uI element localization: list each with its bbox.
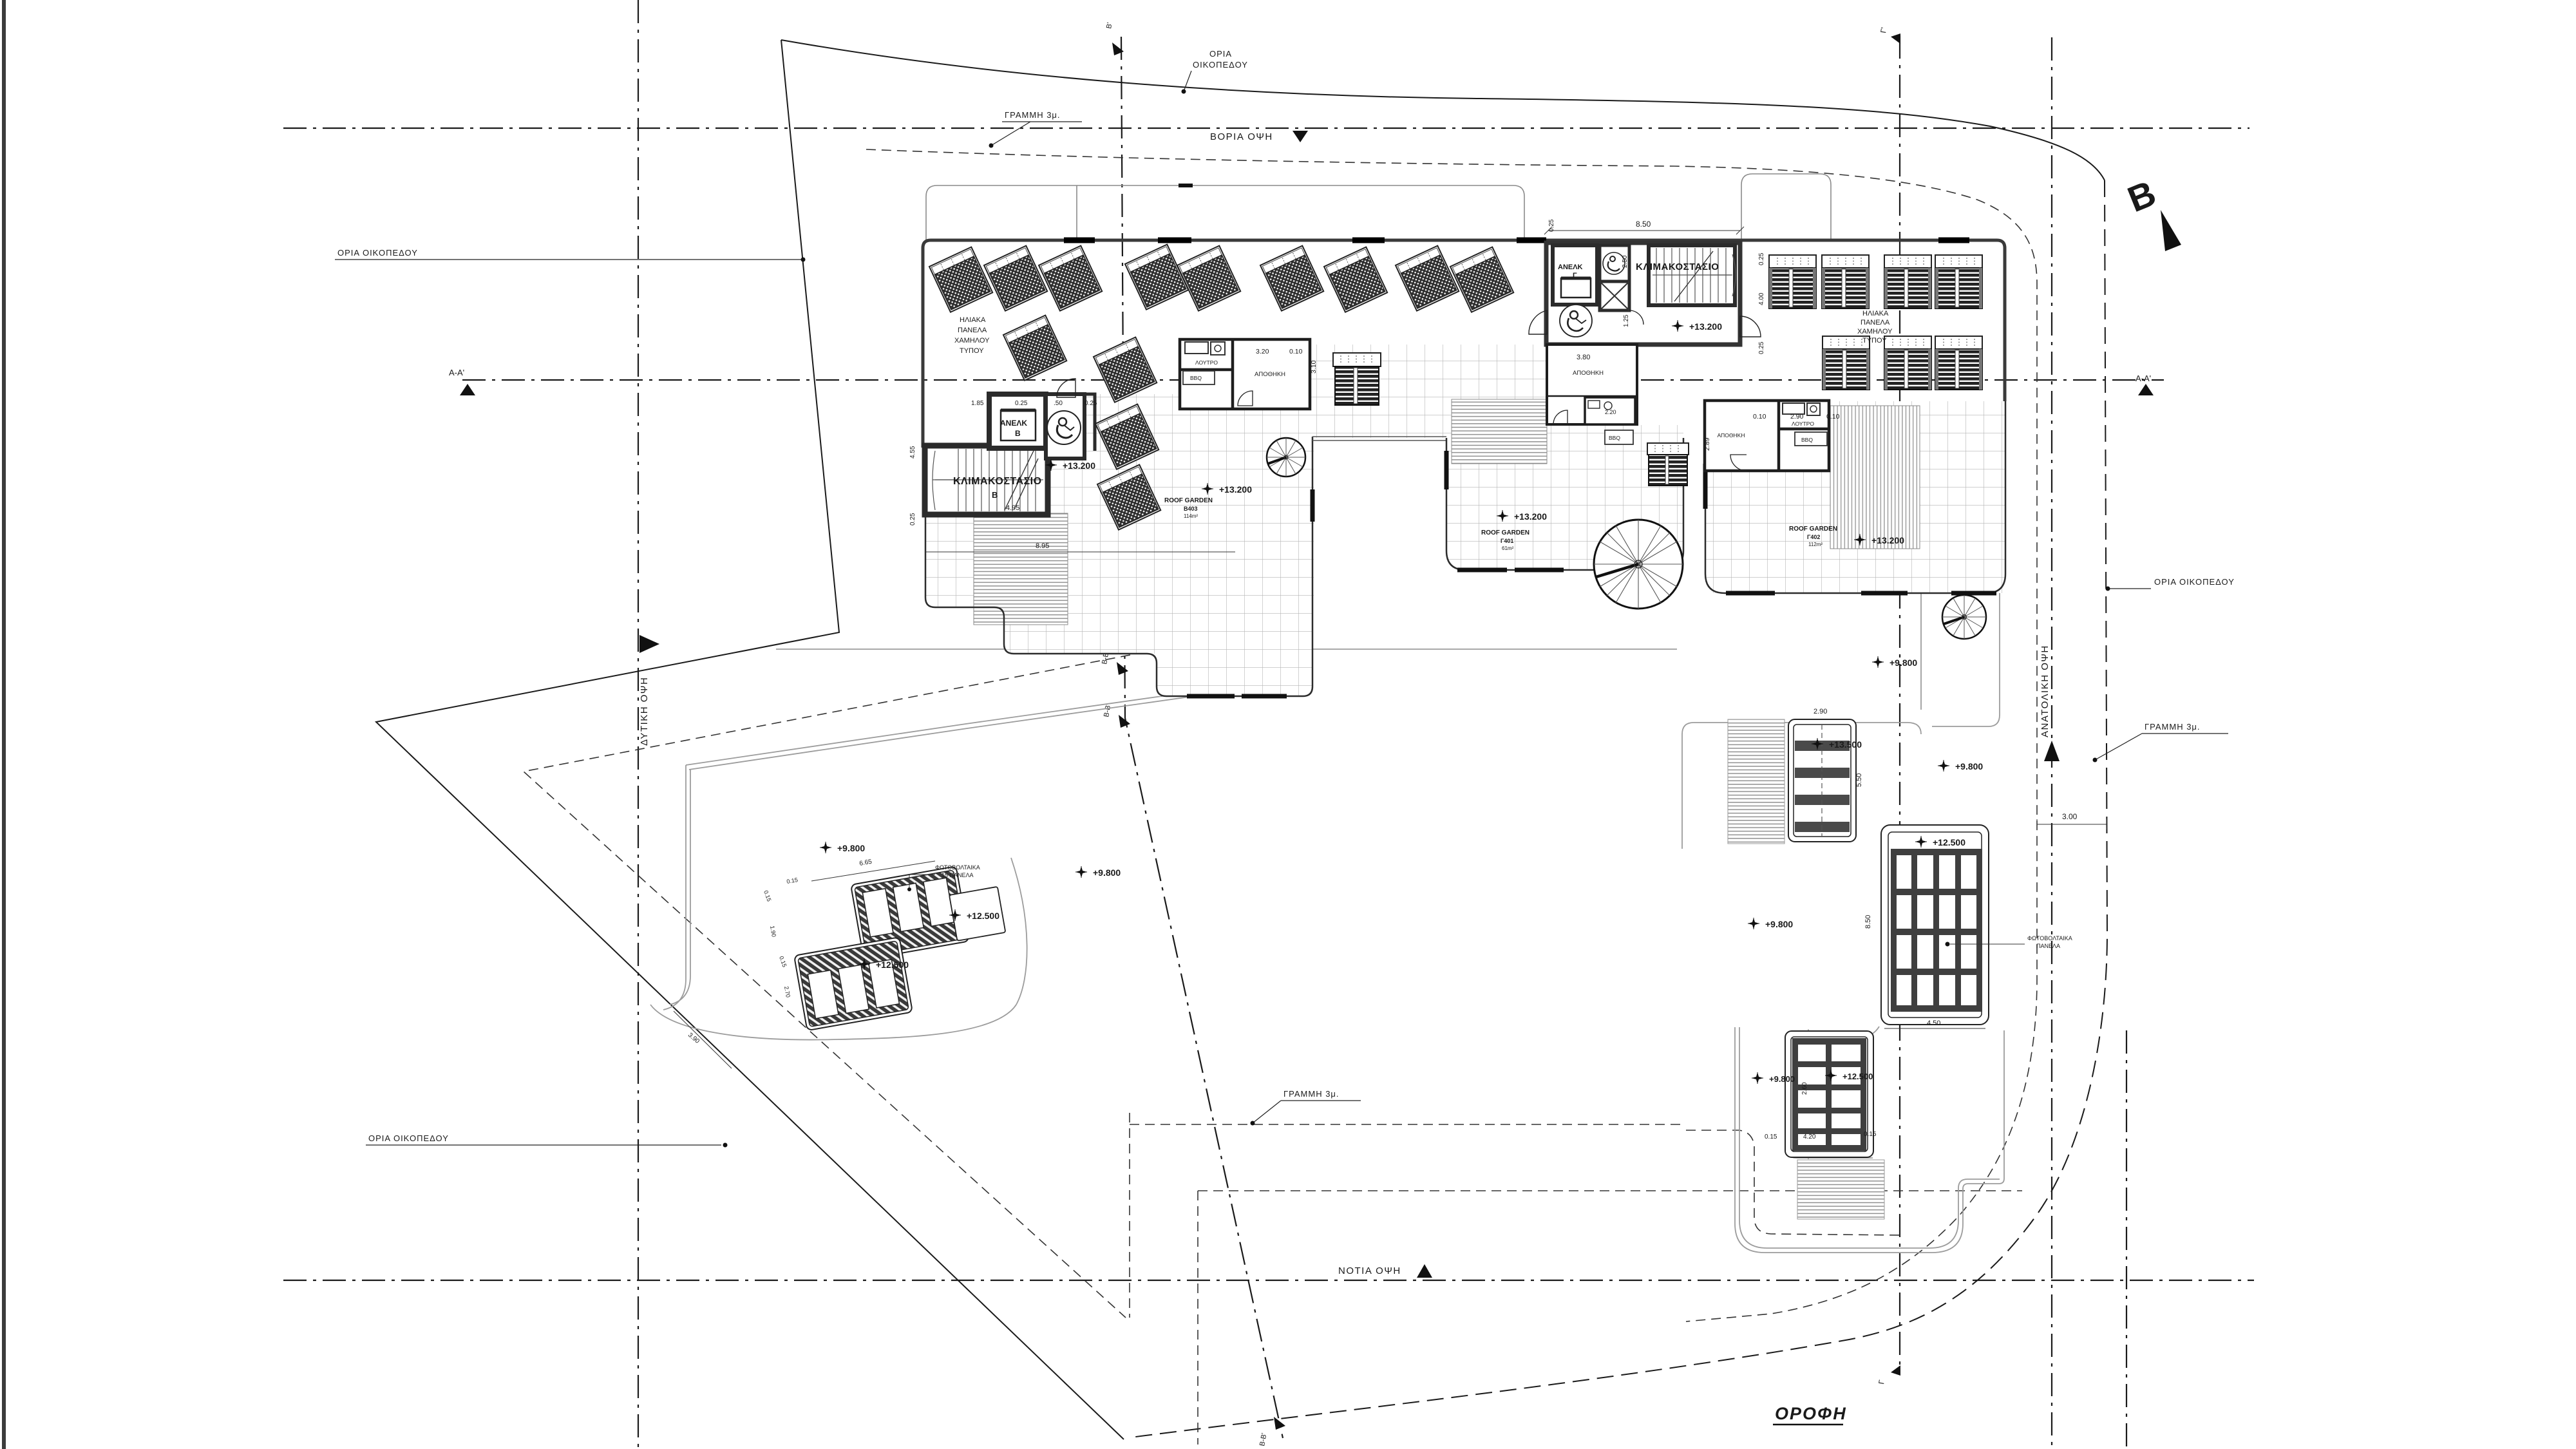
svg-text:ROOF GARDEN: ROOF GARDEN xyxy=(1164,497,1213,504)
svg-text:3.10: 3.10 xyxy=(1310,360,1318,374)
svg-text:+9.800: +9.800 xyxy=(1889,658,1917,668)
svg-text:ΑΠΟΘΗΚΗ: ΑΠΟΘΗΚΗ xyxy=(1573,370,1604,377)
svg-text:+13.200: +13.200 xyxy=(1514,511,1547,522)
svg-text:+12.500: +12.500 xyxy=(1842,1072,1873,1081)
svg-text:1.25: 1.25 xyxy=(1623,314,1630,327)
svg-text:0.25: 0.25 xyxy=(909,513,916,526)
svg-text:+9.800: +9.800 xyxy=(1769,1074,1795,1084)
svg-text:2.50: 2.50 xyxy=(1622,255,1629,268)
svg-text:ΟΡΙΑ: ΟΡΙΑ xyxy=(1209,49,1232,59)
svg-text:+9.800: +9.800 xyxy=(1093,867,1121,878)
svg-text:+12.500: +12.500 xyxy=(876,960,909,970)
svg-text:ΠΑΝΕΛΑ: ΠΑΝΕΛΑ xyxy=(958,327,987,334)
svg-text:ΒΒQ: ΒΒQ xyxy=(1190,375,1202,381)
svg-text:ΑΝΑΤΟΛΙΚΗ ΟΨΗ: ΑΝΑΤΟΛΙΚΗ ΟΨΗ xyxy=(2040,645,2050,737)
svg-text:4.95: 4.95 xyxy=(1006,504,1019,512)
svg-text:ΑΝΕΛΚ: ΑΝΕΛΚ xyxy=(1000,419,1027,428)
svg-text:ΗΛΙΑΚΑ: ΗΛΙΑΚΑ xyxy=(1862,310,1889,317)
svg-text:2.90: 2.90 xyxy=(1814,708,1827,715)
svg-text:0.10: 0.10 xyxy=(1289,348,1303,355)
svg-text:Γ402: Γ402 xyxy=(1807,534,1820,540)
svg-text:ΛΟΥΤΡΟ: ΛΟΥΤΡΟ xyxy=(1792,421,1814,427)
svg-text:ΑΠΟΘΗΚΗ: ΑΠΟΘΗΚΗ xyxy=(1718,432,1745,439)
svg-text:+13.200: +13.200 xyxy=(1871,535,1904,545)
svg-text:4.00: 4.00 xyxy=(1758,292,1765,305)
svg-text:ΦΩΤΟΒΟΛΤΑΙΚΑ: ΦΩΤΟΒΟΛΤΑΙΚΑ xyxy=(935,864,980,871)
svg-text:ΟΡΙΑ ΟΙΚΟΠΕΔΟΥ: ΟΡΙΑ ΟΙΚΟΠΕΔΟΥ xyxy=(368,1133,449,1143)
svg-text:A-A': A-A' xyxy=(449,368,464,377)
svg-text:ΟΙΚΟΠΕΔΟΥ: ΟΙΚΟΠΕΔΟΥ xyxy=(1193,60,1248,70)
svg-text:2.90: 2.90 xyxy=(1790,413,1804,421)
svg-text:Γ: Γ xyxy=(1573,272,1577,279)
svg-text:+9.800: +9.800 xyxy=(1765,919,1793,929)
svg-text:ΚΛΙΜΑΚΟΣΤΑΣΙΟ: ΚΛΙΜΑΚΟΣΤΑΣΙΟ xyxy=(953,476,1042,487)
svg-text:ΓΡΑΜΜΗ 3μ.: ΓΡΑΜΜΗ 3μ. xyxy=(1005,110,1061,120)
svg-text:ΟΡΟΦΗ: ΟΡΟΦΗ xyxy=(1775,1404,1847,1423)
svg-text:0.10: 0.10 xyxy=(1753,413,1766,421)
svg-text:3.20: 3.20 xyxy=(1256,348,1269,355)
svg-text:A-A': A-A' xyxy=(2136,374,2151,383)
svg-text:ΗΛΙΑΚΑ: ΗΛΙΑΚΑ xyxy=(960,316,986,324)
svg-text:61m²: 61m² xyxy=(1502,545,1514,551)
svg-text:Β: Β xyxy=(992,490,998,500)
svg-text:ΤΥΠΟΥ: ΤΥΠΟΥ xyxy=(1862,337,1887,345)
svg-text:Γ401: Γ401 xyxy=(1501,538,1513,544)
svg-text:3.00: 3.00 xyxy=(2062,812,2078,821)
svg-text:+13.200: +13.200 xyxy=(1063,460,1095,471)
svg-text:4.50: 4.50 xyxy=(1927,1019,1940,1027)
svg-text:ROOF GARDEN: ROOF GARDEN xyxy=(1789,526,1837,533)
svg-text:ΠΑΝΕΛΑ: ΠΑΝΕΛΑ xyxy=(1861,319,1890,327)
svg-text:0.15: 0.15 xyxy=(1765,1133,1777,1141)
svg-text:ΧΑΜΗΛΟΥ: ΧΑΜΗΛΟΥ xyxy=(1857,328,1893,336)
svg-text:ΧΑΜΗΛΟΥ: ΧΑΜΗΛΟΥ xyxy=(954,337,990,345)
svg-text:ΒΟΡΙΑ ΟΨΗ: ΒΟΡΙΑ ΟΨΗ xyxy=(1210,131,1273,142)
svg-text:ROOF GARDEN: ROOF GARDEN xyxy=(1481,529,1529,536)
svg-text:4.55: 4.55 xyxy=(909,446,916,459)
svg-text:ΑΝΕΛΚ: ΑΝΕΛΚ xyxy=(1558,263,1583,271)
svg-text:ΔΥΤΙΚΗ ΟΨΗ: ΔΥΤΙΚΗ ΟΨΗ xyxy=(639,677,650,746)
svg-text:4.20: 4.20 xyxy=(1803,1133,1816,1141)
svg-text:ΦΩΤΟΒΟΛΤΑΙΚΑ: ΦΩΤΟΒΟΛΤΑΙΚΑ xyxy=(2027,935,2072,942)
svg-text:+13.500: +13.500 xyxy=(1829,739,1862,750)
svg-text:5.50: 5.50 xyxy=(1855,773,1863,787)
svg-text:0.25: 0.25 xyxy=(1758,252,1765,265)
svg-text:0.25: 0.25 xyxy=(1548,219,1555,232)
svg-text:ΒΒQ: ΒΒQ xyxy=(1609,435,1620,441)
svg-text:+9.800: +9.800 xyxy=(1955,761,1983,772)
svg-text:Β: Β xyxy=(1015,429,1021,438)
svg-text:+9.800: +9.800 xyxy=(837,843,865,853)
svg-text:3.80: 3.80 xyxy=(1577,354,1590,361)
svg-text:0.25: 0.25 xyxy=(1758,341,1765,354)
svg-text:0.25: 0.25 xyxy=(1015,400,1028,407)
svg-text:0.15: 0.15 xyxy=(1864,1131,1877,1138)
svg-text:15 ΠΑΝΕΛΑ: 15 ΠΑΝΕΛΑ xyxy=(942,872,974,878)
svg-text:+12.500: +12.500 xyxy=(967,911,999,921)
svg-text:Β403: Β403 xyxy=(1184,506,1198,512)
svg-text:ΚΛΙΜΑΚΟΣΤΑΣΙΟ: ΚΛΙΜΑΚΟΣΤΑΣΙΟ xyxy=(1636,261,1719,272)
svg-text:ΑΠΟΘΗΚΗ: ΑΠΟΘΗΚΗ xyxy=(1255,371,1285,378)
svg-text:.50: .50 xyxy=(1054,400,1063,407)
svg-text:ΛΟΥΤΡΟ: ΛΟΥΤΡΟ xyxy=(1195,359,1218,366)
svg-text:8.95: 8.95 xyxy=(1036,542,1049,550)
svg-text:1.85: 1.85 xyxy=(971,400,984,407)
svg-text:ΓΡΑΜΜΗ 3μ.: ΓΡΑΜΜΗ 3μ. xyxy=(1283,1089,1340,1099)
svg-text:8.50: 8.50 xyxy=(1636,220,1651,229)
svg-text:2.20: 2.20 xyxy=(1605,409,1616,415)
svg-text:+13.200: +13.200 xyxy=(1219,484,1252,495)
svg-text:0.25: 0.25 xyxy=(1084,400,1097,407)
svg-text:112m²: 112m² xyxy=(1808,542,1823,547)
svg-text:ΝΟΤΙΑ ΟΨΗ: ΝΟΤΙΑ ΟΨΗ xyxy=(1338,1265,1401,1276)
svg-text:+12.500: +12.500 xyxy=(1933,837,1965,848)
svg-text:ΟΡΙΑ ΟΙΚΟΠΕΔΟΥ: ΟΡΙΑ ΟΙΚΟΠΕΔΟΥ xyxy=(337,248,418,258)
svg-text:ΠΑΝΕΛΑ: ΠΑΝΕΛΑ xyxy=(2036,943,2060,949)
svg-text:2.60: 2.60 xyxy=(1801,1082,1808,1095)
svg-text:114m²: 114m² xyxy=(1184,513,1198,519)
svg-text:ΓΡΑΜΜΗ 3μ.: ΓΡΑΜΜΗ 3μ. xyxy=(2145,722,2201,732)
svg-text:ΟΡΙΑ ΟΙΚΟΠΕΔΟΥ: ΟΡΙΑ ΟΙΚΟΠΕΔΟΥ xyxy=(2154,577,2235,587)
svg-text:+13.200: +13.200 xyxy=(1689,321,1722,332)
svg-text:ΒΒQ: ΒΒQ xyxy=(1801,437,1813,443)
svg-text:0.10: 0.10 xyxy=(1826,413,1840,421)
svg-text:2.89: 2.89 xyxy=(1703,437,1711,451)
svg-text:ΤΥΠΟΥ: ΤΥΠΟΥ xyxy=(960,347,984,355)
svg-text:8.50: 8.50 xyxy=(1864,915,1872,929)
